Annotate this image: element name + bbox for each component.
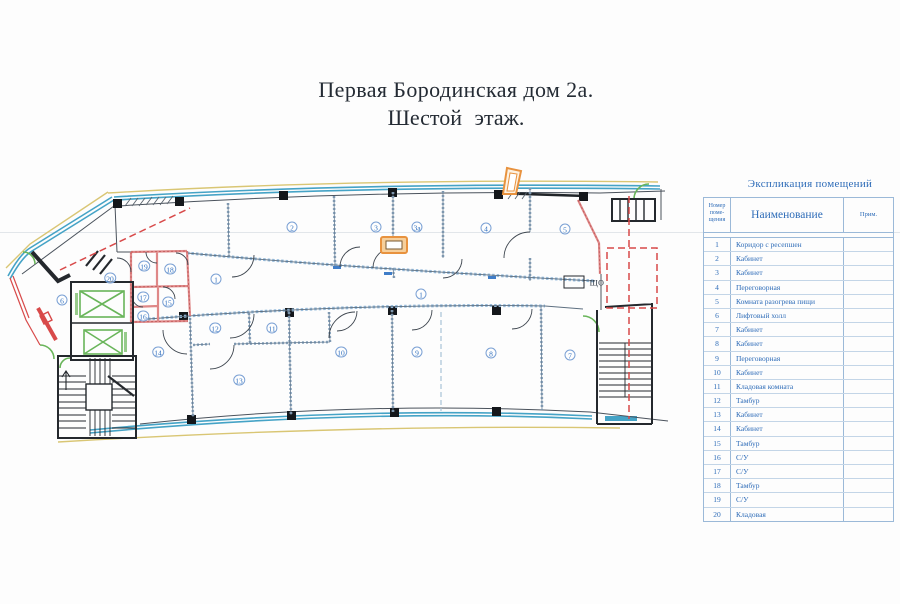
cell-room-number: 14 — [704, 422, 731, 435]
cell-room-note — [844, 422, 893, 435]
cell-room-number: 20 — [704, 508, 731, 521]
room-number-label: 9 — [412, 347, 423, 358]
scanned-drawing-page: Первая Бородинская дом 2а. Шестой этаж. — [0, 0, 900, 604]
cell-room-note — [844, 380, 893, 393]
cell-room-name: Кабинет — [731, 422, 844, 435]
cell-room-name: Тамбур — [731, 479, 844, 492]
cell-room-name: Переговорная — [731, 352, 844, 365]
room-number-label: 1 — [416, 289, 427, 300]
cell-room-note — [844, 295, 893, 308]
cell-room-number: 3 — [704, 266, 731, 279]
cell-room-name: Кабинет — [731, 337, 844, 350]
table-row: 13 Кабинет — [704, 408, 893, 422]
column-header-name: Наименование — [731, 198, 844, 232]
exterior-ladder — [612, 199, 655, 221]
cell-room-note — [844, 323, 893, 336]
cell-room-note — [844, 408, 893, 421]
cell-room-note — [844, 337, 893, 350]
left-red-elements — [10, 276, 56, 345]
cell-room-note — [844, 352, 893, 365]
cell-room-number: 9 — [704, 352, 731, 365]
cell-room-number: 19 — [704, 493, 731, 506]
column-header-number: Номер поме- щения — [704, 198, 731, 232]
cell-room-name: С/У — [731, 451, 844, 464]
table-row: 4 Переговорная — [704, 281, 893, 295]
cell-room-name: С/У — [731, 465, 844, 478]
room-number-label: 5 — [560, 224, 571, 235]
column-header-note: Прим. — [844, 198, 893, 232]
table-row: 10 Кабинет — [704, 366, 893, 380]
cell-room-note — [844, 309, 893, 322]
cell-room-note — [844, 451, 893, 464]
table-row: 2 Кабинет — [704, 252, 893, 266]
explication-table-body: 1 Коридор с ресепшен 2 Кабинет 3 Кабинет… — [704, 238, 893, 521]
table-row: 7 Кабинет — [704, 323, 893, 337]
wall-hatching — [125, 192, 527, 206]
table-row: 12 Тамбур — [704, 394, 893, 408]
cell-room-note — [844, 252, 893, 265]
cell-room-note — [844, 437, 893, 450]
room-number-label: 16 — [137, 311, 149, 322]
cell-room-name: Комната разогрева пищи — [731, 295, 844, 308]
room-number-label: 7 — [565, 350, 576, 361]
cell-room-number: 18 — [704, 479, 731, 492]
cell-room-number: 4 — [704, 281, 731, 294]
cell-room-name: Переговорная — [731, 281, 844, 294]
electrical-board-box — [564, 276, 584, 288]
door-swing-arcs — [117, 232, 532, 369]
explication-table: Номер поме- щения Наименование Прим. 1 К… — [703, 197, 894, 522]
room-number-label: 3а — [411, 222, 422, 233]
cell-room-name: Кабинет — [731, 408, 844, 421]
cell-room-name: Лифтовый холл — [731, 309, 844, 322]
table-row: 19 С/У — [704, 493, 893, 507]
cell-room-note — [844, 266, 893, 279]
electrical-board-label: ЩО — [590, 279, 605, 288]
cell-room-number: 12 — [704, 394, 731, 407]
room-number-label: 18 — [164, 264, 176, 275]
room-number-label: 19 — [138, 261, 150, 272]
table-row: 18 Тамбур — [704, 479, 893, 493]
room-number-label: 14 — [152, 347, 164, 358]
cell-room-note — [844, 493, 893, 506]
cell-room-number: 17 — [704, 465, 731, 478]
cell-room-number: 16 — [704, 451, 731, 464]
right-staircase — [597, 303, 652, 424]
room-number-label: 1 — [211, 274, 222, 285]
cell-room-number: 7 — [704, 323, 731, 336]
facade-yellow-lines — [6, 181, 658, 442]
table-row: 8 Кабинет — [704, 337, 893, 351]
cell-room-name: Кабинет — [731, 252, 844, 265]
table-row: 20 Кладовая — [704, 508, 893, 521]
cell-room-name: Тамбур — [731, 437, 844, 450]
table-row: 11 Кладовая комната — [704, 380, 893, 394]
left-staircase — [58, 356, 136, 438]
room-number-label: 10 — [335, 347, 347, 358]
entry-vestibule — [32, 251, 112, 281]
elevator-shafts — [71, 282, 133, 360]
cell-room-note — [844, 479, 893, 492]
cell-room-name: Кабинет — [731, 366, 844, 379]
green-door-arcs — [23, 184, 649, 368]
cell-room-note — [844, 238, 893, 251]
cell-room-name: С/У — [731, 493, 844, 506]
cell-room-name: Коридор с ресепшен — [731, 238, 844, 251]
cell-room-number: 5 — [704, 295, 731, 308]
cell-room-number: 15 — [704, 437, 731, 450]
cell-room-number: 13 — [704, 408, 731, 421]
elevator-car-1 — [75, 291, 124, 317]
cell-room-note — [844, 508, 893, 521]
room-number-label: 2 — [287, 222, 298, 233]
cell-room-name: Кладовая комната — [731, 380, 844, 393]
room-number-label: 4 — [481, 223, 492, 234]
elevator-car-2 — [84, 330, 127, 354]
table-row: 5 Комната разогрева пищи — [704, 295, 893, 309]
table-row: 1 Коридор с ресепшен — [704, 238, 893, 252]
cell-room-note — [844, 366, 893, 379]
cell-room-note — [844, 465, 893, 478]
room-number-label: 13 — [233, 375, 245, 386]
cell-room-name: Тамбур — [731, 394, 844, 407]
cell-room-number: 1 — [704, 238, 731, 251]
corridor-walls — [148, 253, 595, 319]
cell-room-name: Кабинет — [731, 323, 844, 336]
cell-room-note — [844, 281, 893, 294]
table-row: 14 Кабинет — [704, 422, 893, 436]
cell-room-number: 11 — [704, 380, 731, 393]
room-number-label: 17 — [137, 292, 149, 303]
table-row: 17 С/У — [704, 465, 893, 479]
cell-room-name: Кладовая — [731, 508, 844, 521]
explication-title: Экспликация помещений — [710, 178, 900, 190]
cell-room-number: 8 — [704, 337, 731, 350]
cell-room-number: 2 — [704, 252, 731, 265]
room-number-label: 20 — [104, 273, 116, 284]
room-number-label: 15 — [162, 297, 174, 308]
table-row: 16 С/У — [704, 451, 893, 465]
cell-room-number: 6 — [704, 309, 731, 322]
stair-direction-arrow — [62, 371, 70, 390]
room-number-label: 6 — [57, 295, 68, 306]
room-number-label: 8 — [486, 348, 497, 359]
cell-room-note — [844, 394, 893, 407]
room-number-label: 12 — [209, 323, 221, 334]
table-row: 9 Переговорная — [704, 352, 893, 366]
table-row: 6 Лифтовый холл — [704, 309, 893, 323]
table-row: 3 Кабинет — [704, 266, 893, 280]
cell-room-name: Кабинет — [731, 266, 844, 279]
explication-table-header: Номер поме- щения Наименование Прим. — [704, 198, 893, 233]
room-number-label: 3 — [371, 222, 382, 233]
table-row: 15 Тамбур — [704, 437, 893, 451]
cell-room-number: 10 — [704, 366, 731, 379]
